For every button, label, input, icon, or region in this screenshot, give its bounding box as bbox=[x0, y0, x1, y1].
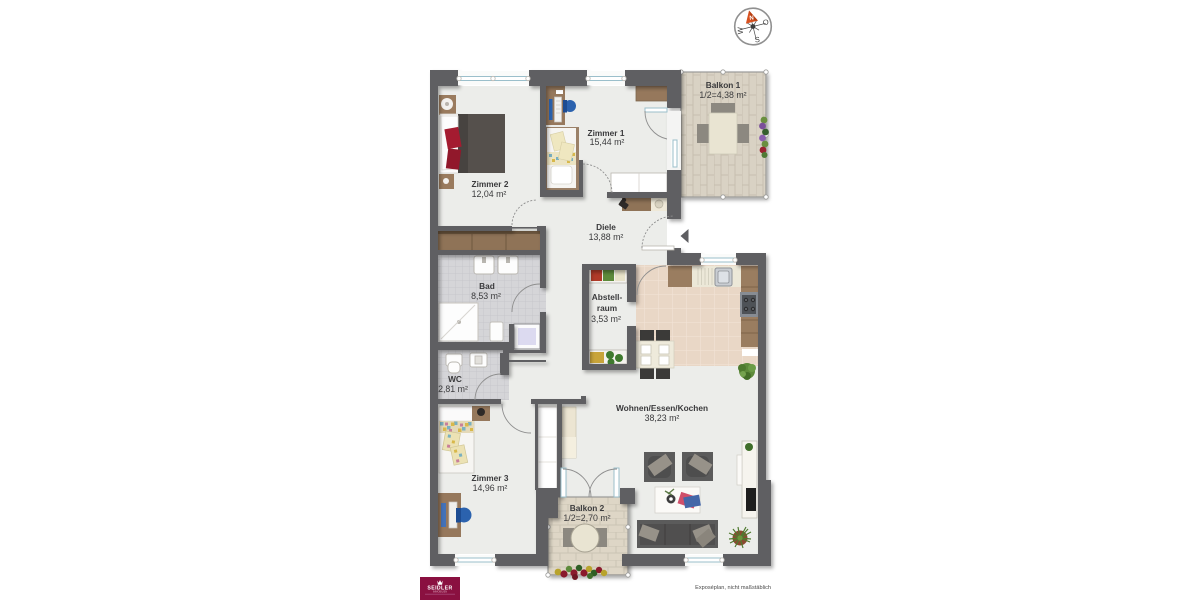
svg-text:Balkon 1: Balkon 1 bbox=[706, 80, 741, 90]
svg-text:Balkon 2: Balkon 2 bbox=[570, 503, 605, 513]
svg-text:15,44 m²: 15,44 m² bbox=[590, 137, 625, 147]
svg-text:3,53 m²: 3,53 m² bbox=[591, 314, 621, 324]
svg-text:8,53 m²: 8,53 m² bbox=[471, 291, 501, 301]
svg-text:WC: WC bbox=[448, 374, 462, 384]
svg-text:Zimmer 2: Zimmer 2 bbox=[472, 179, 509, 189]
svg-text:Abstell-: Abstell- bbox=[592, 292, 623, 302]
svg-text:38,23 m²: 38,23 m² bbox=[645, 413, 680, 423]
svg-text:14,96 m²: 14,96 m² bbox=[473, 483, 508, 493]
svg-text:Zimmer 3: Zimmer 3 bbox=[472, 473, 509, 483]
svg-text:13,88 m²: 13,88 m² bbox=[589, 232, 624, 242]
svg-text:Bad: Bad bbox=[479, 281, 495, 291]
svg-text:12,04 m²: 12,04 m² bbox=[472, 189, 507, 199]
svg-text:2,81 m²: 2,81 m² bbox=[438, 384, 468, 394]
svg-text:raum: raum bbox=[597, 303, 617, 313]
svg-text:N: N bbox=[749, 15, 754, 21]
svg-text:1/2=4,38 m²: 1/2=4,38 m² bbox=[699, 90, 746, 100]
svg-text:O: O bbox=[763, 18, 770, 27]
svg-text:IMMOBILIEN: IMMOBILIEN bbox=[433, 591, 447, 594]
svg-text:W: W bbox=[736, 26, 745, 34]
svg-text:Wohnen/Essen/Kochen: Wohnen/Essen/Kochen bbox=[616, 403, 708, 413]
svg-text:Diele: Diele bbox=[596, 222, 616, 232]
svg-text:1/2=2,70 m²: 1/2=2,70 m² bbox=[563, 513, 610, 523]
svg-text:Exposéplan, nicht maßstäblich: Exposéplan, nicht maßstäblich bbox=[695, 585, 771, 591]
